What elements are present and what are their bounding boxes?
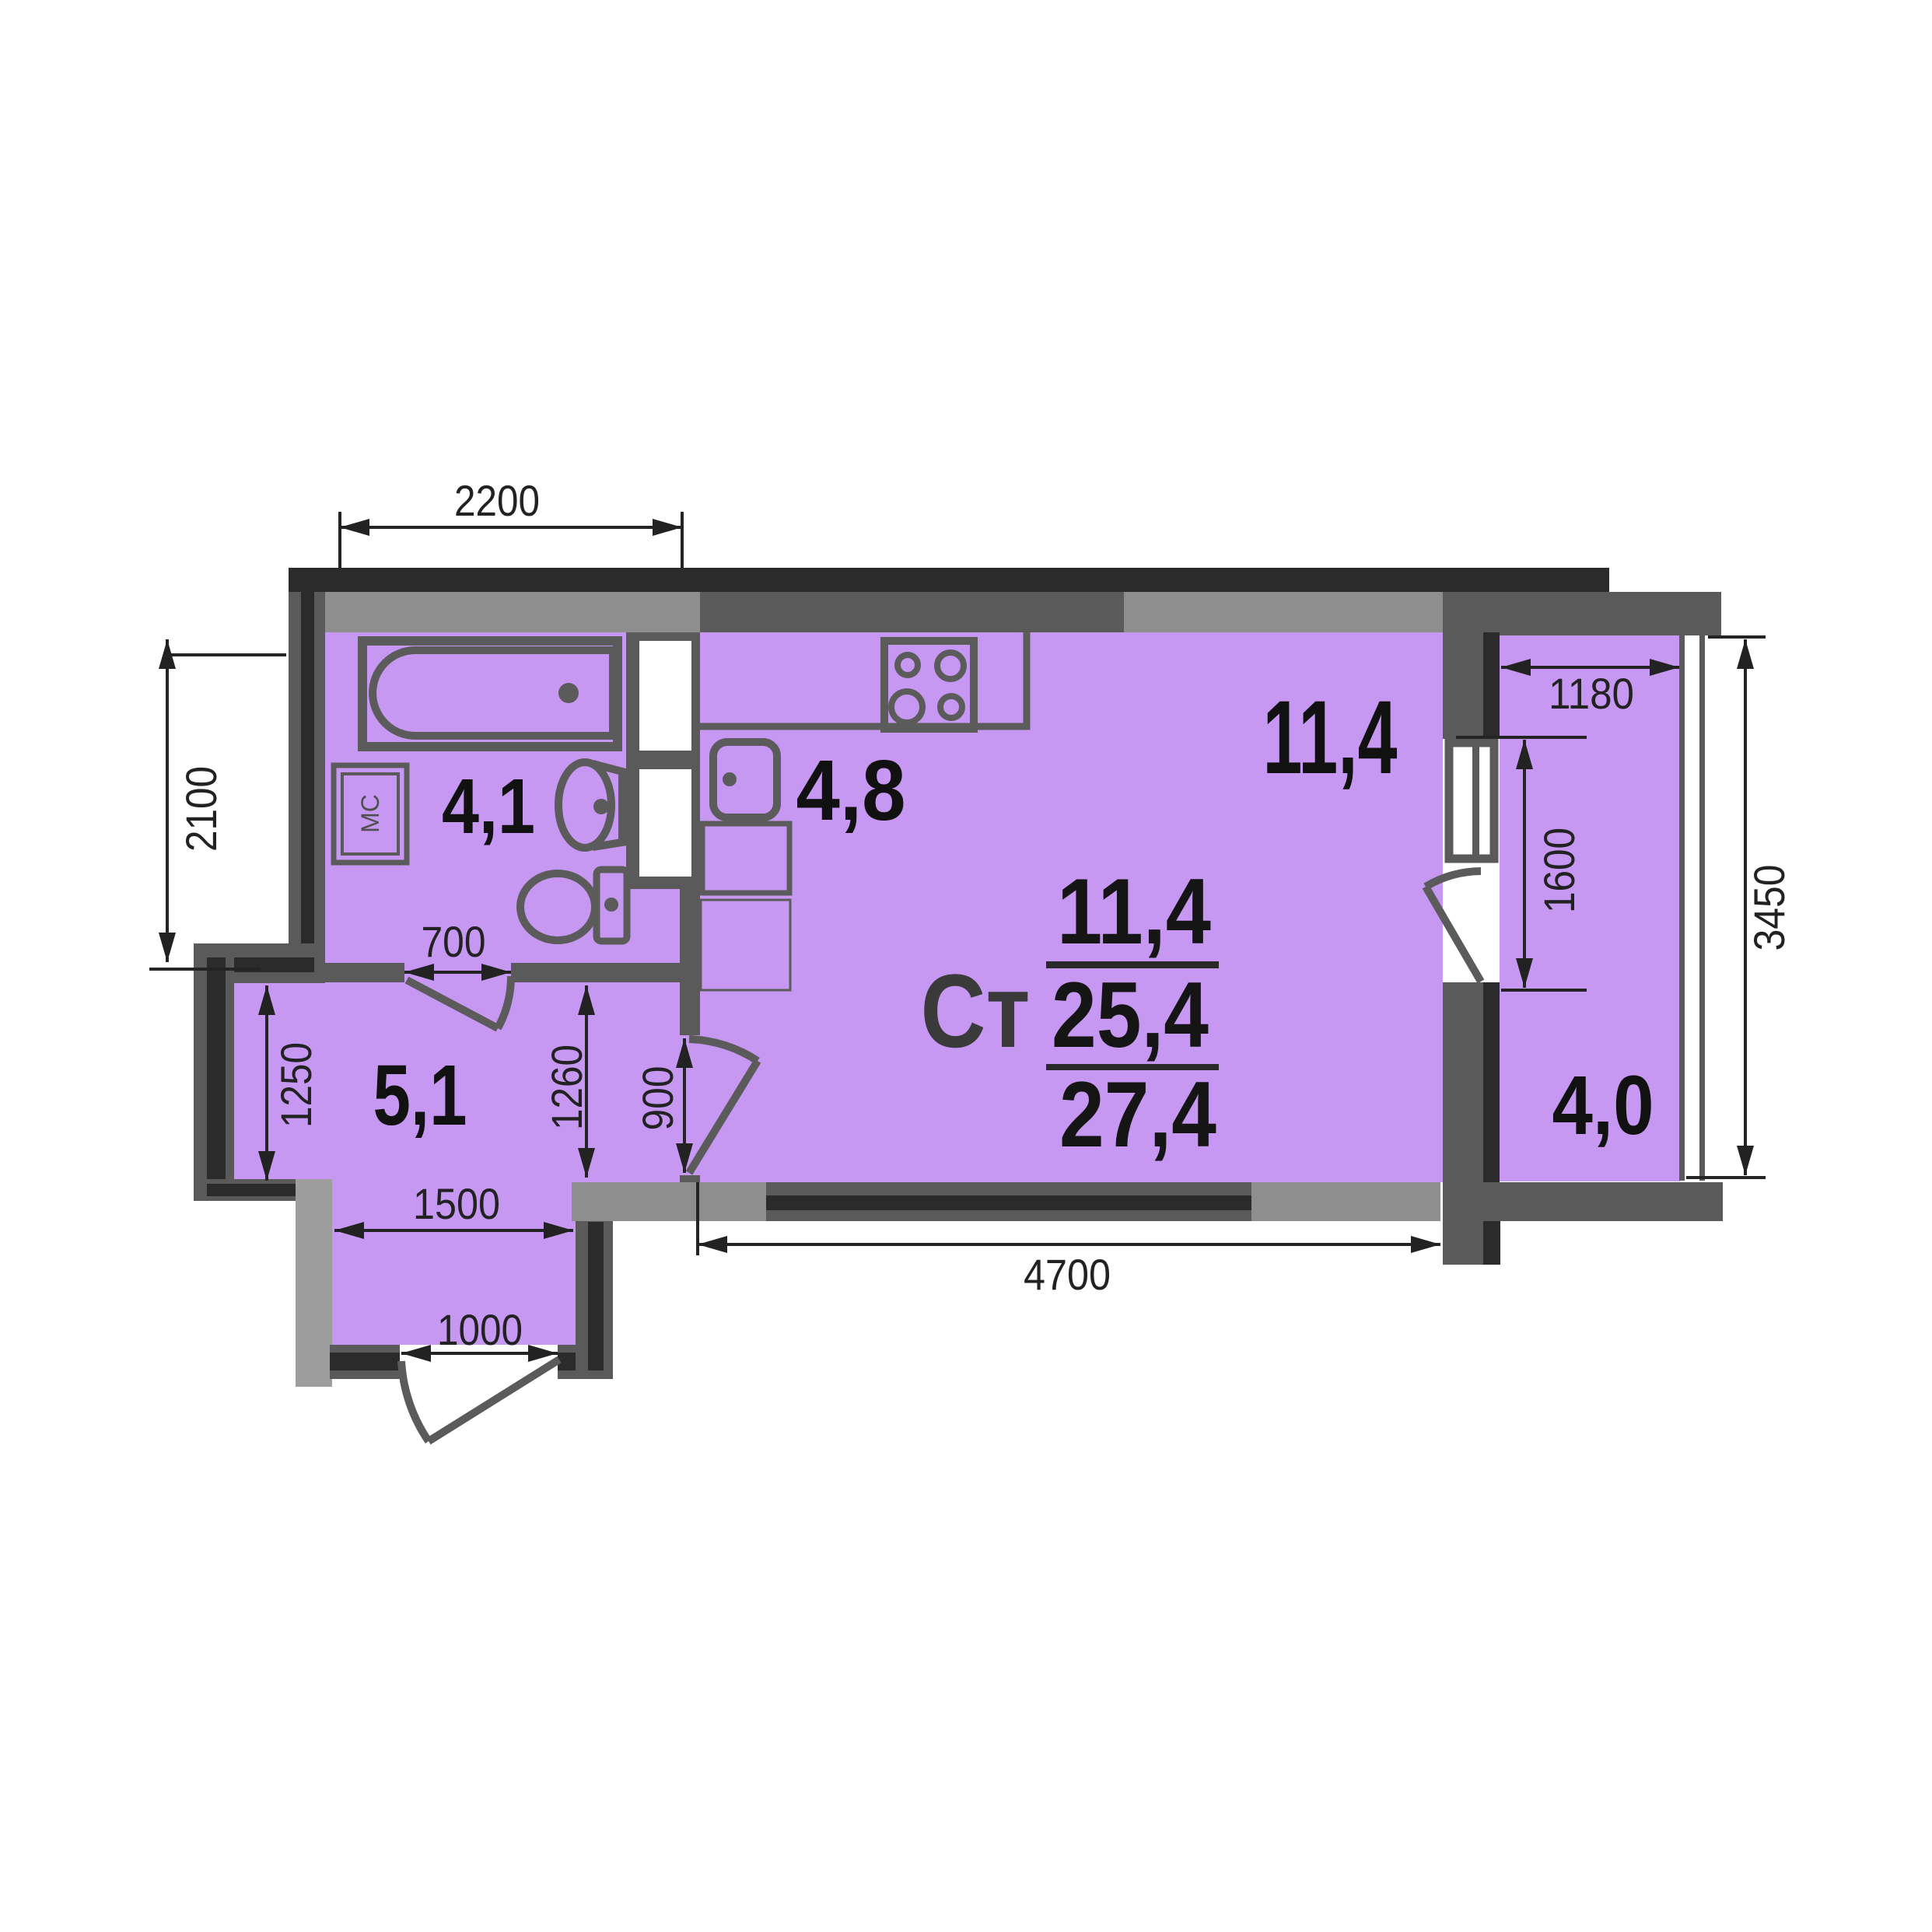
svg-text:МС: МС <box>356 794 384 833</box>
svg-text:Ст: Ст <box>921 954 1031 1069</box>
svg-text:1260: 1260 <box>542 1045 591 1130</box>
svg-text:27,4: 27,4 <box>1059 1062 1216 1167</box>
svg-text:4,1: 4,1 <box>442 763 535 850</box>
svg-text:3450: 3450 <box>1745 865 1794 951</box>
svg-text:900: 900 <box>633 1066 682 1131</box>
svg-text:4,8: 4,8 <box>796 743 906 838</box>
svg-text:700: 700 <box>422 917 486 966</box>
svg-text:1250: 1250 <box>271 1042 320 1128</box>
svg-text:4700: 4700 <box>1024 1250 1111 1299</box>
svg-text:1000: 1000 <box>437 1305 523 1354</box>
svg-text:1600: 1600 <box>1535 828 1584 913</box>
svg-text:5,1: 5,1 <box>373 1048 467 1143</box>
svg-text:1180: 1180 <box>1549 669 1634 718</box>
svg-text:11,4: 11,4 <box>1057 859 1211 964</box>
svg-text:25,4: 25,4 <box>1052 963 1209 1067</box>
svg-text:2100: 2100 <box>177 766 226 852</box>
svg-text:4,0: 4,0 <box>1552 1058 1654 1152</box>
svg-text:2200: 2200 <box>454 476 540 525</box>
svg-text:1500: 1500 <box>413 1179 500 1228</box>
svg-text:11,4: 11,4 <box>1263 680 1398 796</box>
